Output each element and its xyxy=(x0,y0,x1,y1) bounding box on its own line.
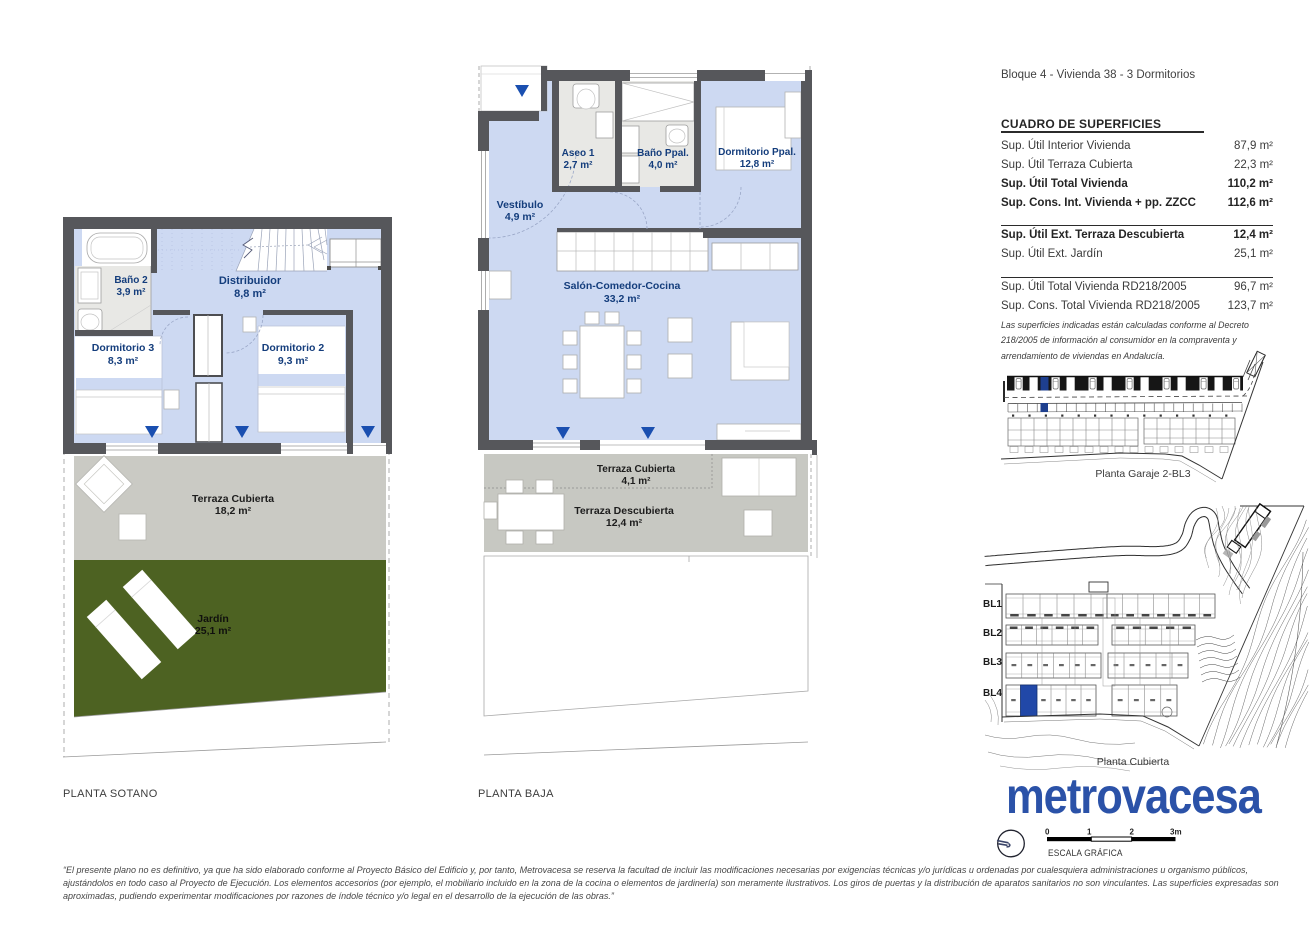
svg-text:Aseo 1: Aseo 1 xyxy=(562,148,595,159)
svg-text:3m: 3m xyxy=(1170,828,1182,837)
svg-text:8,3 m²: 8,3 m² xyxy=(108,355,139,367)
svg-text:4,1 m²: 4,1 m² xyxy=(622,476,652,487)
svg-text:2,7 m²: 2,7 m² xyxy=(564,160,594,171)
svg-text:Salón-Comedor-Cocina: Salón-Comedor-Cocina xyxy=(564,280,681,292)
svg-text:Terraza Cubierta: Terraza Cubierta xyxy=(597,464,676,475)
svg-text:12,4 m²: 12,4 m² xyxy=(606,517,643,529)
svg-text:Planta Garaje 2-BL3: Planta Garaje 2-BL3 xyxy=(1095,468,1190,480)
svg-text:Baño Ppal.: Baño Ppal. xyxy=(637,148,689,159)
svg-text:1: 1 xyxy=(1087,828,1092,837)
svg-text:9,3 m²: 9,3 m² xyxy=(278,355,309,367)
svg-text:4,9 m²: 4,9 m² xyxy=(505,211,536,223)
svg-text:BL1: BL1 xyxy=(983,599,1002,610)
svg-text:2: 2 xyxy=(1130,828,1135,837)
svg-text:Jardín: Jardín xyxy=(197,613,229,625)
svg-text:3,9 m²: 3,9 m² xyxy=(117,287,147,298)
svg-text:BL4: BL4 xyxy=(983,688,1002,699)
svg-text:18,2 m²: 18,2 m² xyxy=(215,505,252,517)
svg-text:Terraza Cubierta: Terraza Cubierta xyxy=(192,493,274,505)
svg-text:25,1 m²: 25,1 m² xyxy=(195,625,232,637)
svg-text:Dormitorio 3: Dormitorio 3 xyxy=(92,342,155,354)
svg-text:Terraza Descubierta: Terraza Descubierta xyxy=(574,505,674,517)
svg-text:Distribuidor: Distribuidor xyxy=(219,275,282,287)
svg-text:Dormitorio 2: Dormitorio 2 xyxy=(262,342,325,354)
svg-text:Dormitorio Ppal.: Dormitorio Ppal. xyxy=(718,147,796,158)
svg-text:8,8 m²: 8,8 m² xyxy=(234,288,266,300)
svg-text:Vestíbulo: Vestíbulo xyxy=(497,199,544,211)
svg-text:4,0 m²: 4,0 m² xyxy=(649,160,679,171)
svg-text:0: 0 xyxy=(1045,828,1050,837)
svg-text:BL3: BL3 xyxy=(983,657,1002,668)
svg-text:BL2: BL2 xyxy=(983,628,1002,639)
svg-text:Baño 2: Baño 2 xyxy=(114,275,148,286)
svg-text:12,8 m²: 12,8 m² xyxy=(740,159,775,170)
svg-text:33,2 m²: 33,2 m² xyxy=(604,293,641,305)
